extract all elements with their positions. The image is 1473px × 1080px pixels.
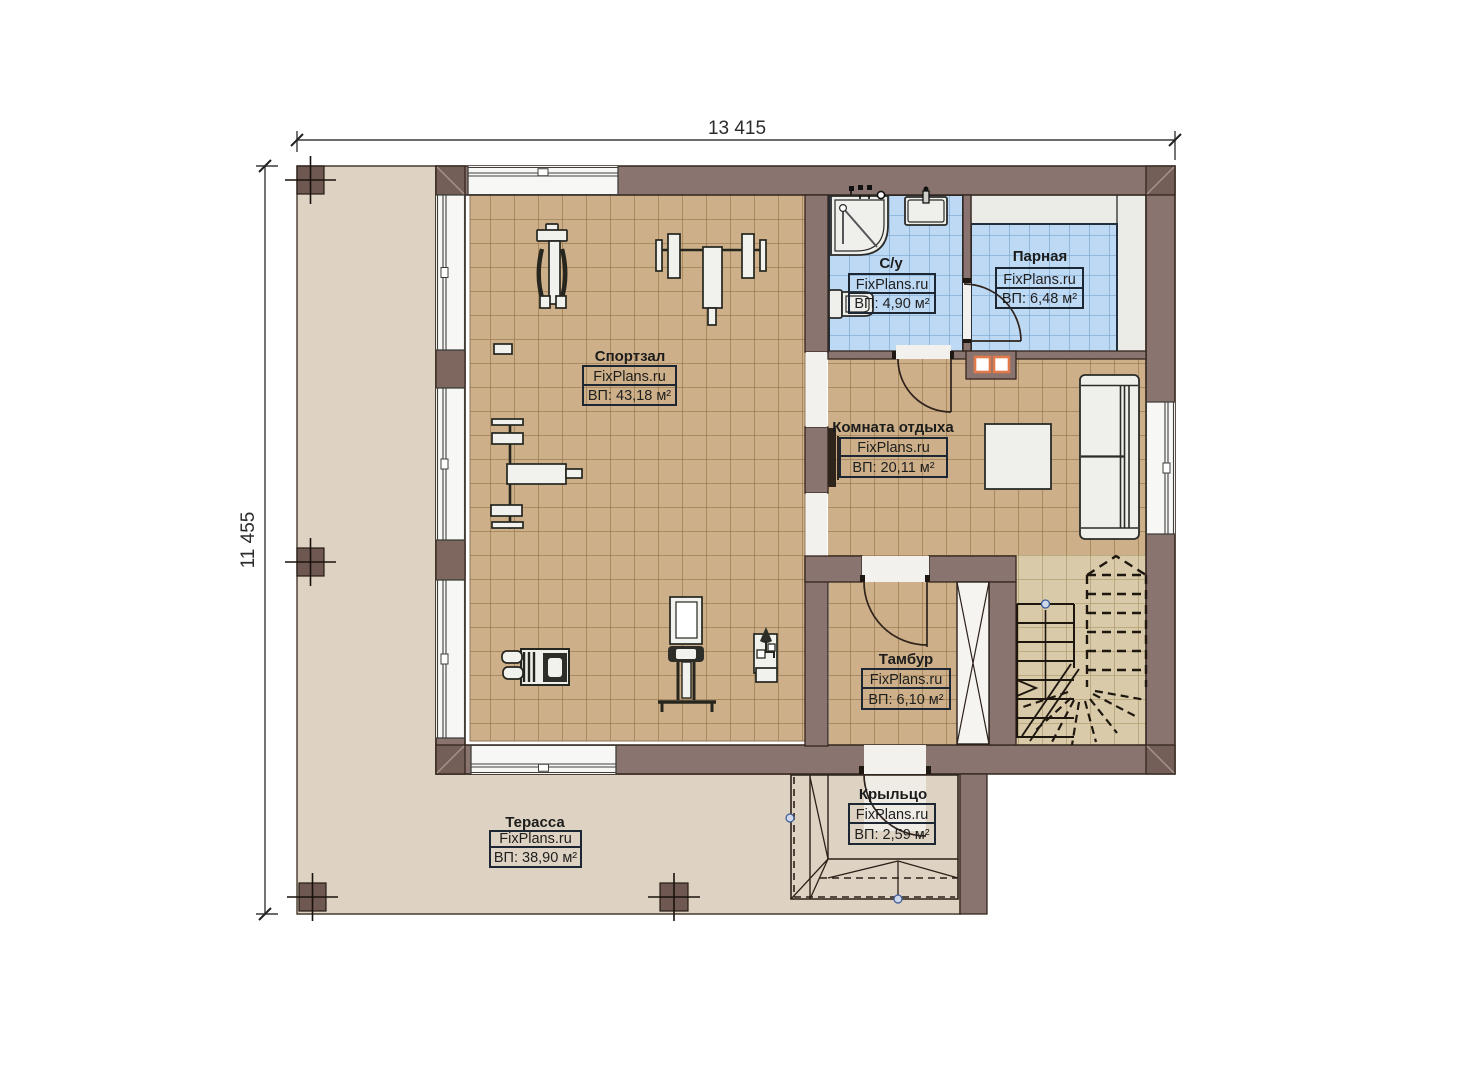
svg-text:С/у: С/у — [879, 255, 903, 272]
svg-text:FixPlans.ru: FixPlans.ru — [870, 672, 943, 688]
svg-text:ВП: 4,90 м²: ВП: 4,90 м² — [854, 296, 929, 312]
svg-text:ВП: 2,59 м²: ВП: 2,59 м² — [854, 827, 929, 843]
svg-text:FixPlans.ru: FixPlans.ru — [593, 369, 666, 385]
svg-text:Спортзал: Спортзал — [595, 348, 666, 365]
svg-text:ВП: 38,90 м²: ВП: 38,90 м² — [494, 850, 577, 866]
svg-text:Парная: Парная — [1013, 248, 1067, 265]
svg-text:11 455: 11 455 — [238, 512, 259, 569]
svg-text:ВП: 6,10 м²: ВП: 6,10 м² — [868, 692, 943, 708]
svg-text:FixPlans.ru: FixPlans.ru — [857, 440, 930, 456]
svg-text:13 415: 13 415 — [708, 118, 766, 139]
svg-text:Терасса: Терасса — [505, 814, 565, 831]
svg-text:FixPlans.ru: FixPlans.ru — [1003, 272, 1076, 288]
svg-text:ВП: 6,48 м²: ВП: 6,48 м² — [1002, 291, 1077, 307]
svg-text:Тамбур: Тамбур — [879, 651, 933, 668]
svg-text:FixPlans.ru: FixPlans.ru — [856, 807, 929, 823]
svg-text:Комната отдыха: Комната отдыха — [832, 419, 954, 436]
svg-text:ВП: 20,11 м²: ВП: 20,11 м² — [852, 460, 934, 476]
svg-text:FixPlans.ru: FixPlans.ru — [856, 277, 929, 293]
svg-text:ВП: 43,18 м²: ВП: 43,18 м² — [588, 388, 671, 404]
svg-text:Крыльцо: Крыльцо — [859, 786, 927, 803]
svg-text:FixPlans.ru: FixPlans.ru — [499, 831, 572, 847]
